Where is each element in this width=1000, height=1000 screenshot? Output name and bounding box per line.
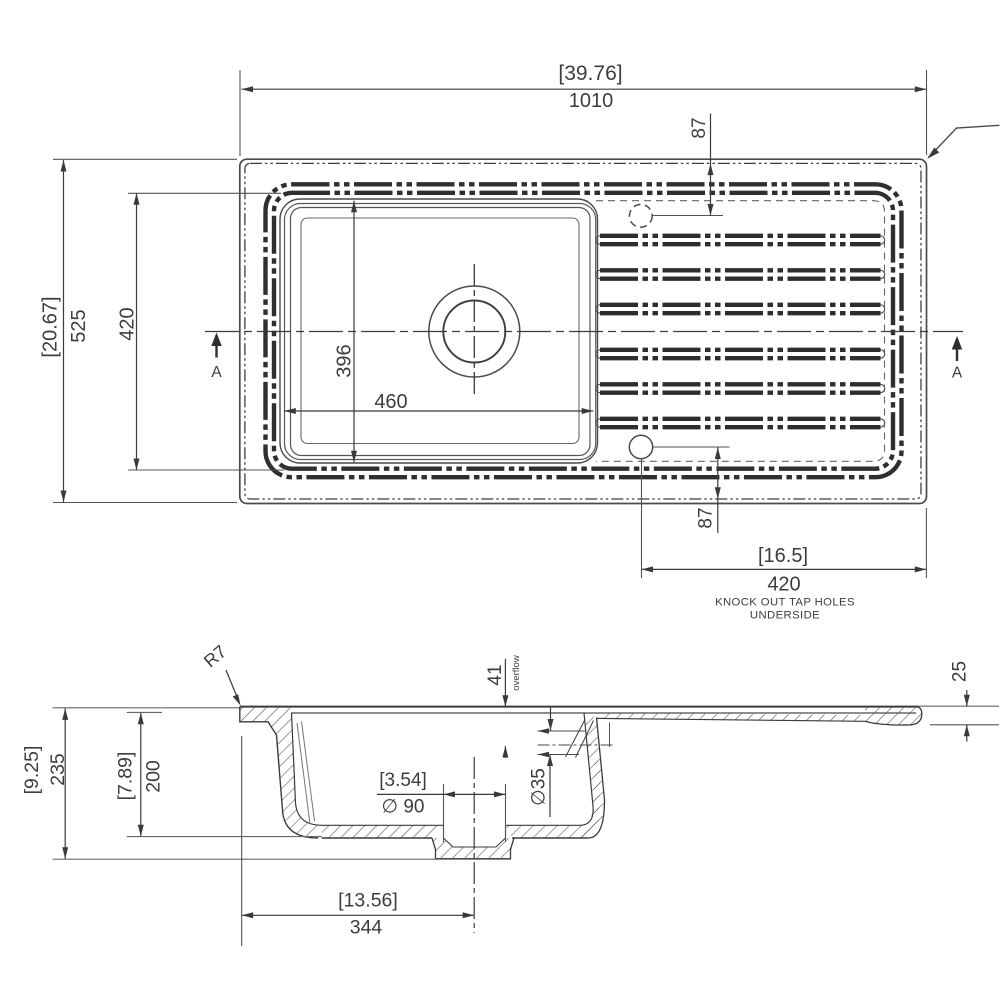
svg-text:∅ 90: ∅ 90 xyxy=(382,797,425,818)
svg-text:A: A xyxy=(952,365,963,382)
svg-text:[20.67]: [20.67] xyxy=(40,296,62,357)
svg-text:[13.56]: [13.56] xyxy=(338,890,398,912)
svg-text:200: 200 xyxy=(143,760,165,793)
svg-text:87: 87 xyxy=(696,507,717,528)
svg-text:overflow: overflow xyxy=(511,655,522,691)
svg-text:[16.5]: [16.5] xyxy=(758,545,808,567)
svg-text:344: 344 xyxy=(350,917,383,939)
svg-text:[39.76]: [39.76] xyxy=(558,62,622,85)
svg-text:235: 235 xyxy=(47,753,69,786)
svg-text:A: A xyxy=(211,364,222,381)
svg-text:UNDERSIDE: UNDERSIDE xyxy=(750,610,820,622)
svg-text:396: 396 xyxy=(334,344,356,377)
svg-text:420: 420 xyxy=(767,574,800,596)
svg-text:25: 25 xyxy=(950,661,971,682)
svg-text:[3.54]: [3.54] xyxy=(379,770,427,791)
svg-text:[9.25]: [9.25] xyxy=(21,746,43,795)
svg-text:41: 41 xyxy=(485,664,506,685)
svg-text:525: 525 xyxy=(68,309,90,342)
svg-text:87: 87 xyxy=(689,117,710,138)
svg-text:KNOCK OUT TAP HOLES: KNOCK OUT TAP HOLES xyxy=(715,597,855,609)
svg-text:460: 460 xyxy=(374,391,407,413)
svg-text:[7.89]: [7.89] xyxy=(115,752,137,801)
svg-text:∅35: ∅35 xyxy=(529,768,550,806)
svg-text:1010: 1010 xyxy=(569,90,614,112)
svg-text:420: 420 xyxy=(117,307,139,340)
